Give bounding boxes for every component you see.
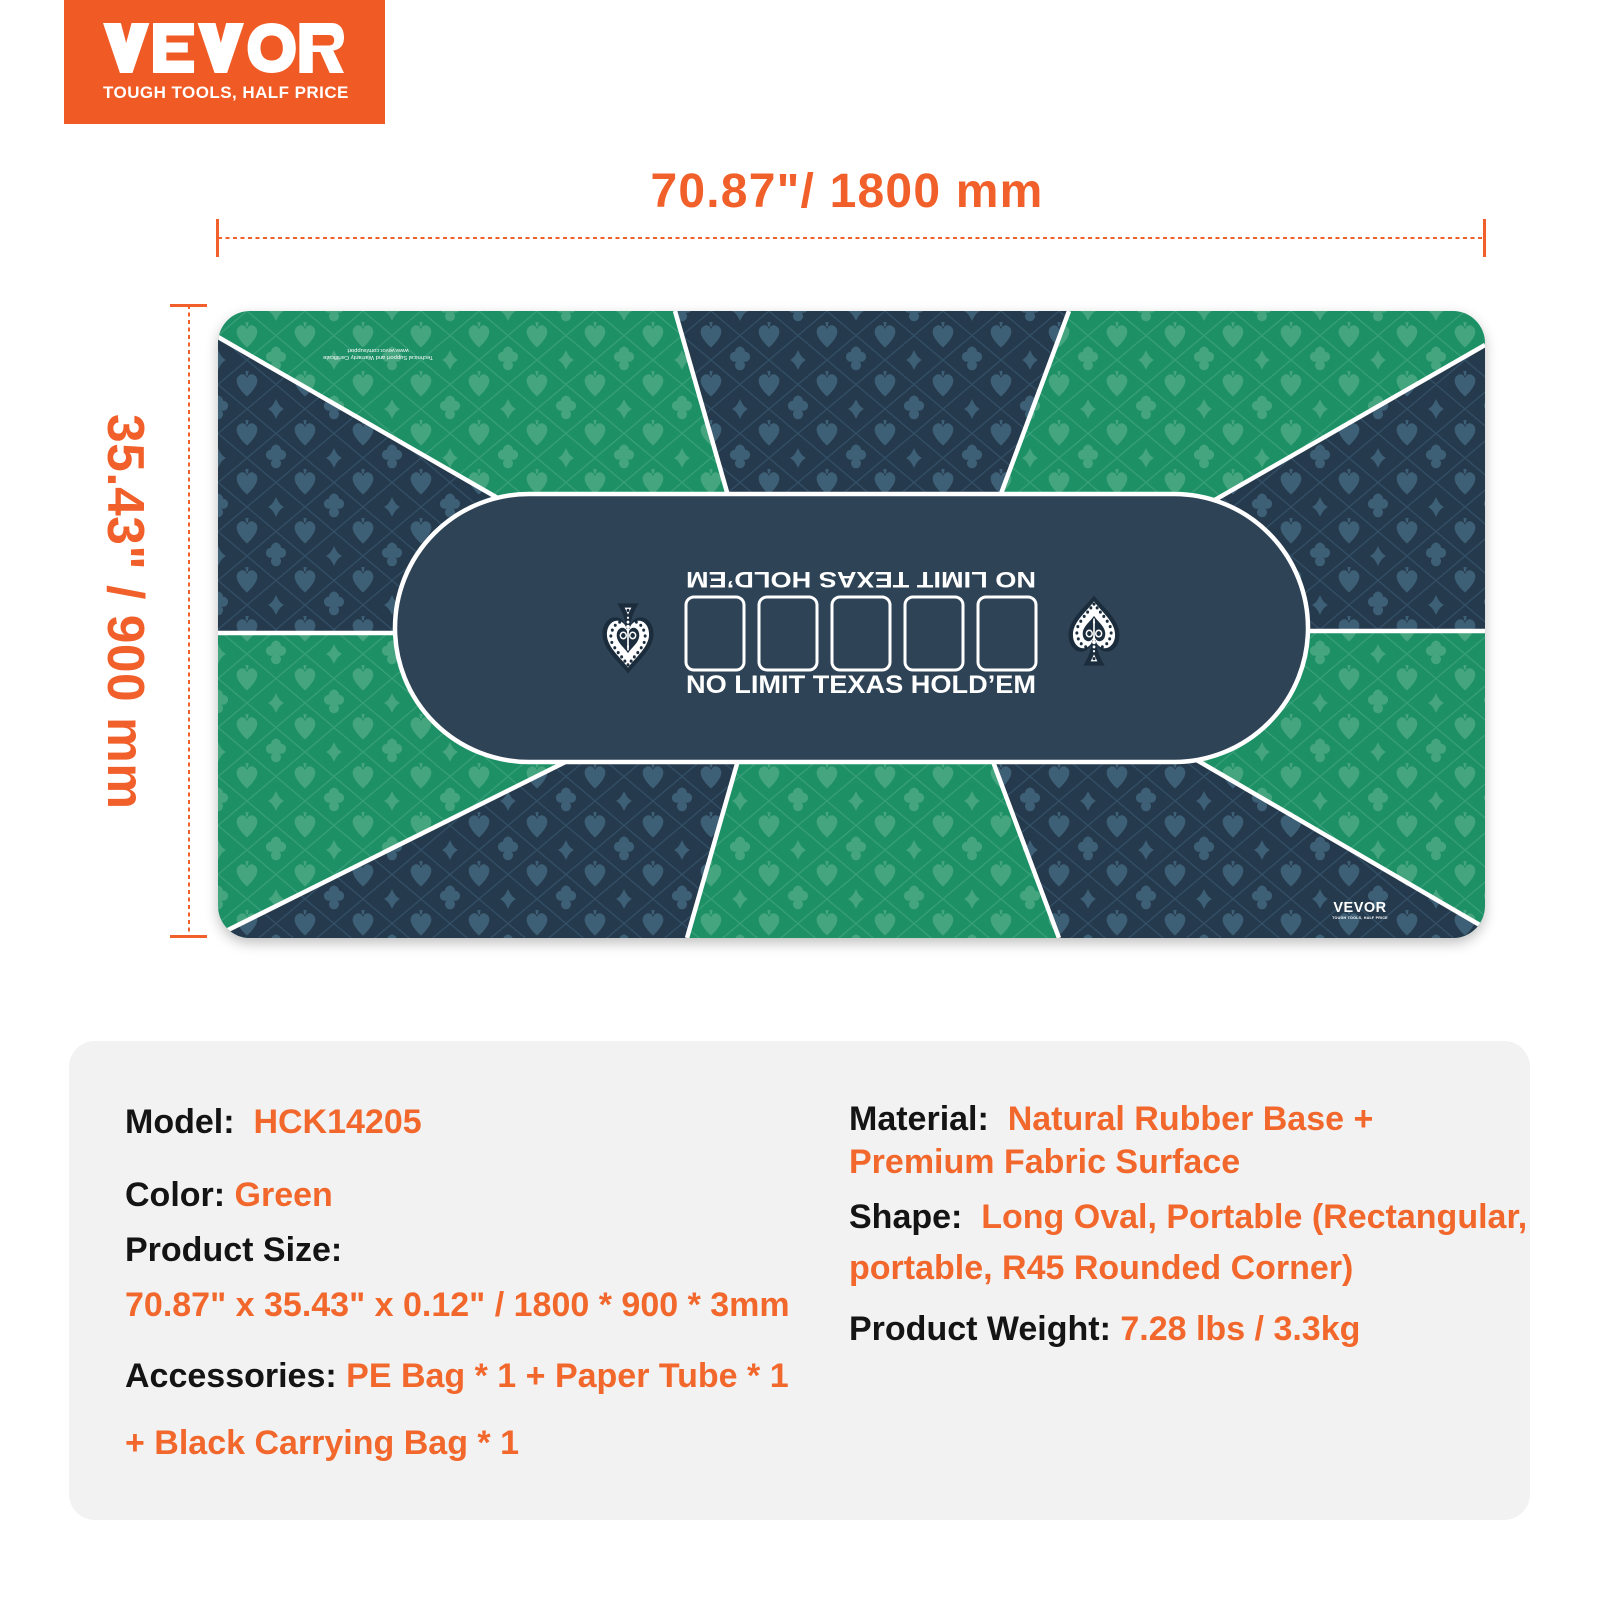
svg-text:NO LIMIT TEXAS HOLD’EM: NO LIMIT TEXAS HOLD’EM (686, 671, 1036, 699)
svg-text:www.vevor.com/support: www.vevor.com/support (347, 347, 410, 353)
svg-text:VEVOR: VEVOR (1333, 900, 1386, 916)
svg-text:Technical Support and Warranty: Technical Support and Warranty Certifica… (323, 354, 433, 360)
svg-text:NO LIMIT TEXAS HOLD’EM: NO LIMIT TEXAS HOLD’EM (686, 567, 1036, 592)
svg-text:TOUGH TOOLS, HALF PRICE: TOUGH TOOLS, HALF PRICE (1332, 916, 1388, 920)
